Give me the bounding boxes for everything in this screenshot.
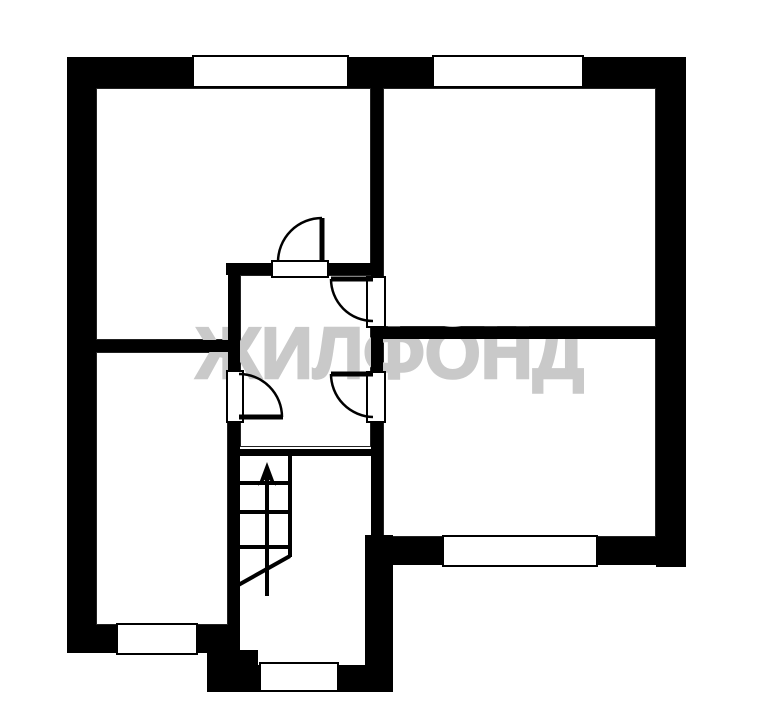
door-jamb-right-upper (367, 277, 385, 327)
door-jamb-right-lower (367, 372, 385, 422)
door-swing-arc-left (239, 374, 282, 417)
door-jamb-top (272, 261, 328, 277)
floor-plan: ЖИЛФОНД (0, 0, 772, 719)
window-top-right (433, 56, 583, 87)
window-top-left (193, 56, 348, 87)
window-vestibule-entrance (260, 663, 338, 691)
door-swing-arc-top (278, 218, 322, 262)
staircase (233, 451, 290, 596)
door-jamb-left (227, 371, 243, 422)
window-bottom-left (117, 624, 197, 654)
stair-diagonal-line (233, 556, 290, 588)
window-bottom-right (443, 536, 597, 566)
plan-lines-overlay (0, 0, 772, 719)
